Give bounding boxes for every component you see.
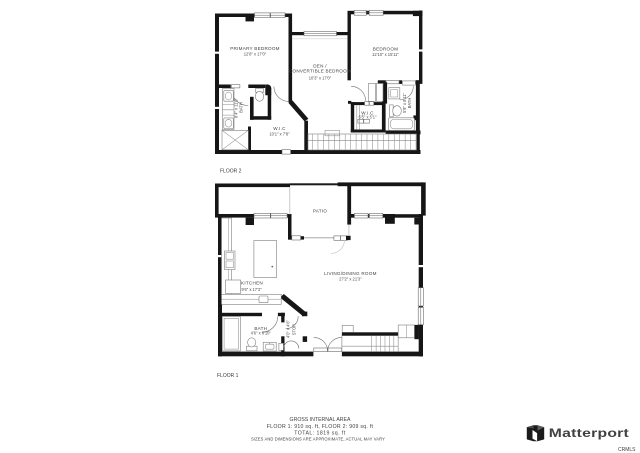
- svg-text:5'9" x 8'11": 5'9" x 8'11": [402, 93, 407, 113]
- svg-text:PATIO: PATIO: [313, 208, 328, 213]
- svg-text:4'0" x 4'6": 4'0" x 4'6": [286, 320, 291, 338]
- svg-text:10'3" x 17'0": 10'3" x 17'0": [309, 76, 332, 81]
- svg-text:KITCHEN: KITCHEN: [241, 280, 263, 285]
- svg-text:BEDROOM: BEDROOM: [373, 46, 399, 51]
- svg-text:BATH: BATH: [407, 98, 412, 109]
- svg-text:4'6" x 6'10": 4'6" x 6'10": [251, 331, 272, 336]
- svg-text:CONVERTIBLE BEDROOM: CONVERTIBLE BEDROOM: [289, 68, 351, 73]
- svg-text:CRMLS: CRMLS: [618, 447, 636, 453]
- svg-text:GROSS INTERNAL AREA: GROSS INTERNAL AREA: [290, 417, 351, 423]
- svg-text:PRIMARY BEDROOM: PRIMARY BEDROOM: [230, 46, 280, 51]
- svg-text:8'4" x 11'6": 8'4" x 11'6": [234, 98, 239, 118]
- svg-text:12'8" x 17'0": 12'8" x 17'0": [244, 52, 267, 57]
- svg-text:SIZES AND DIMENSIONS ARE APPRO: SIZES AND DIMENSIONS ARE APPROXIMATE, AC…: [251, 436, 385, 441]
- svg-text:STOR.: STOR.: [291, 323, 296, 335]
- svg-text:27'2" x 21'3": 27'2" x 21'3": [339, 276, 362, 281]
- svg-text:FLOOR 2: FLOOR 2: [220, 168, 242, 174]
- svg-text:FLOOR 1: 910 sq. ft, FLOOR 2:: FLOOR 1: 910 sq. ft, FLOOR 2: 909 sq. ft: [267, 424, 374, 430]
- svg-text:BATH: BATH: [239, 102, 244, 113]
- svg-text:10'1" x 7'8": 10'1" x 7'8": [269, 132, 290, 137]
- svg-text:6'5" x 5'1": 6'5" x 5'1": [359, 115, 377, 120]
- svg-text:9'6" x 17'3": 9'6" x 17'3": [241, 287, 262, 292]
- svg-text:W.I.C: W.I.C: [273, 126, 286, 131]
- svg-text:FLOOR 1: FLOOR 1: [217, 373, 239, 379]
- svg-text:12'10" x 15'11": 12'10" x 15'11": [372, 52, 399, 57]
- svg-text:Matterport: Matterport: [549, 426, 629, 440]
